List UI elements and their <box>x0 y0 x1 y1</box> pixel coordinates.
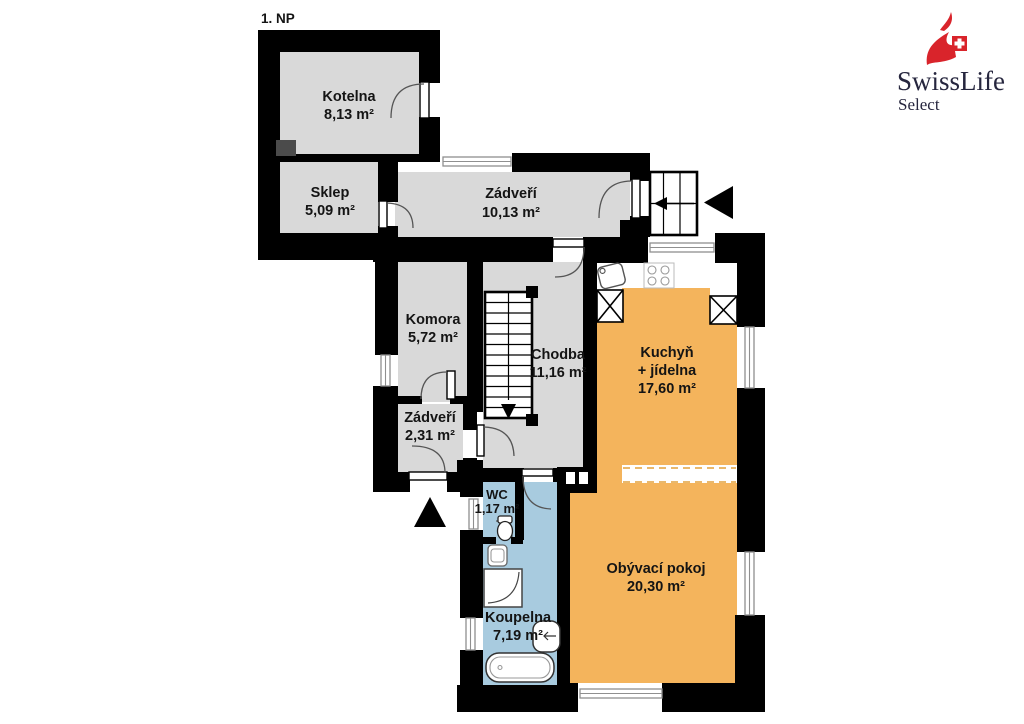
room-chodba-label: Chodba <box>531 347 586 363</box>
toilet-icon <box>498 516 513 541</box>
room-sklep-area: 5,09 m² <box>305 203 355 219</box>
room-kotelna-label: Kotelna <box>322 89 376 105</box>
window <box>650 243 714 252</box>
entrance-arrow-side <box>414 497 446 527</box>
room-zadveri-small-label: Zádveří <box>404 410 457 426</box>
wall-pocket-1 <box>566 472 575 484</box>
shaft-xbox-right <box>710 296 737 324</box>
logo-brand: SwissLife <box>897 66 1005 96</box>
floor-plan-page: Kotelna 8,13 m² Sklep 5,09 m² Zádveří 10… <box>0 0 1024 724</box>
room-chodba-area: 11,16 m² <box>529 365 586 381</box>
room-obyvaci-label: Obývací pokoj <box>606 561 705 577</box>
room-obyvaci-area: 20,30 m² <box>627 579 685 595</box>
window <box>580 689 662 698</box>
swisslife-flame-icon <box>927 12 967 65</box>
washbasin-small-icon <box>488 545 507 566</box>
window <box>381 355 390 386</box>
window <box>745 327 754 388</box>
exterior-steps <box>650 172 697 235</box>
room-komora-area: 5,72 m² <box>408 330 458 346</box>
room-komora-label: Komora <box>406 312 462 328</box>
stove-icon <box>644 263 674 288</box>
window <box>443 157 511 166</box>
room-zadveri-main-area: 10,13 m² <box>482 205 540 221</box>
page-title: 1. NP <box>261 11 295 26</box>
room-wc-label: WC <box>486 487 508 502</box>
room-kuchyn-area: 17,60 m² <box>638 381 696 397</box>
room-kuchyn-label2: + jídelna <box>638 363 697 379</box>
window <box>745 552 754 615</box>
room-sklep-label: Sklep <box>311 185 350 201</box>
entrance-arrow-main <box>704 186 733 219</box>
window <box>466 618 475 650</box>
room-koupelna-label: Koupelna <box>485 610 552 626</box>
logo-subbrand: Select <box>898 95 940 114</box>
room-kuchyn-label: Kuchyň <box>640 345 693 361</box>
room-koupelna-area: 7,19 m² <box>493 628 543 644</box>
chimney-block <box>276 140 296 156</box>
kitchen-living-passage <box>622 467 737 483</box>
room-wc-area: 1,17 m² <box>475 501 520 516</box>
wall-pocket-2 <box>579 472 588 484</box>
room-kotelna-area: 8,13 m² <box>324 107 374 123</box>
logo: SwissLife Select <box>897 12 1005 114</box>
shaft-xbox-left <box>597 290 623 322</box>
room-zadveri-main-label: Zádveří <box>485 186 538 202</box>
floor-plan: Kotelna 8,13 m² Sklep 5,09 m² Zádveří 10… <box>0 0 1024 724</box>
room-zadveri-small-area: 2,31 m² <box>405 428 455 444</box>
shower-icon <box>484 569 522 607</box>
bathtub-icon <box>486 653 554 682</box>
